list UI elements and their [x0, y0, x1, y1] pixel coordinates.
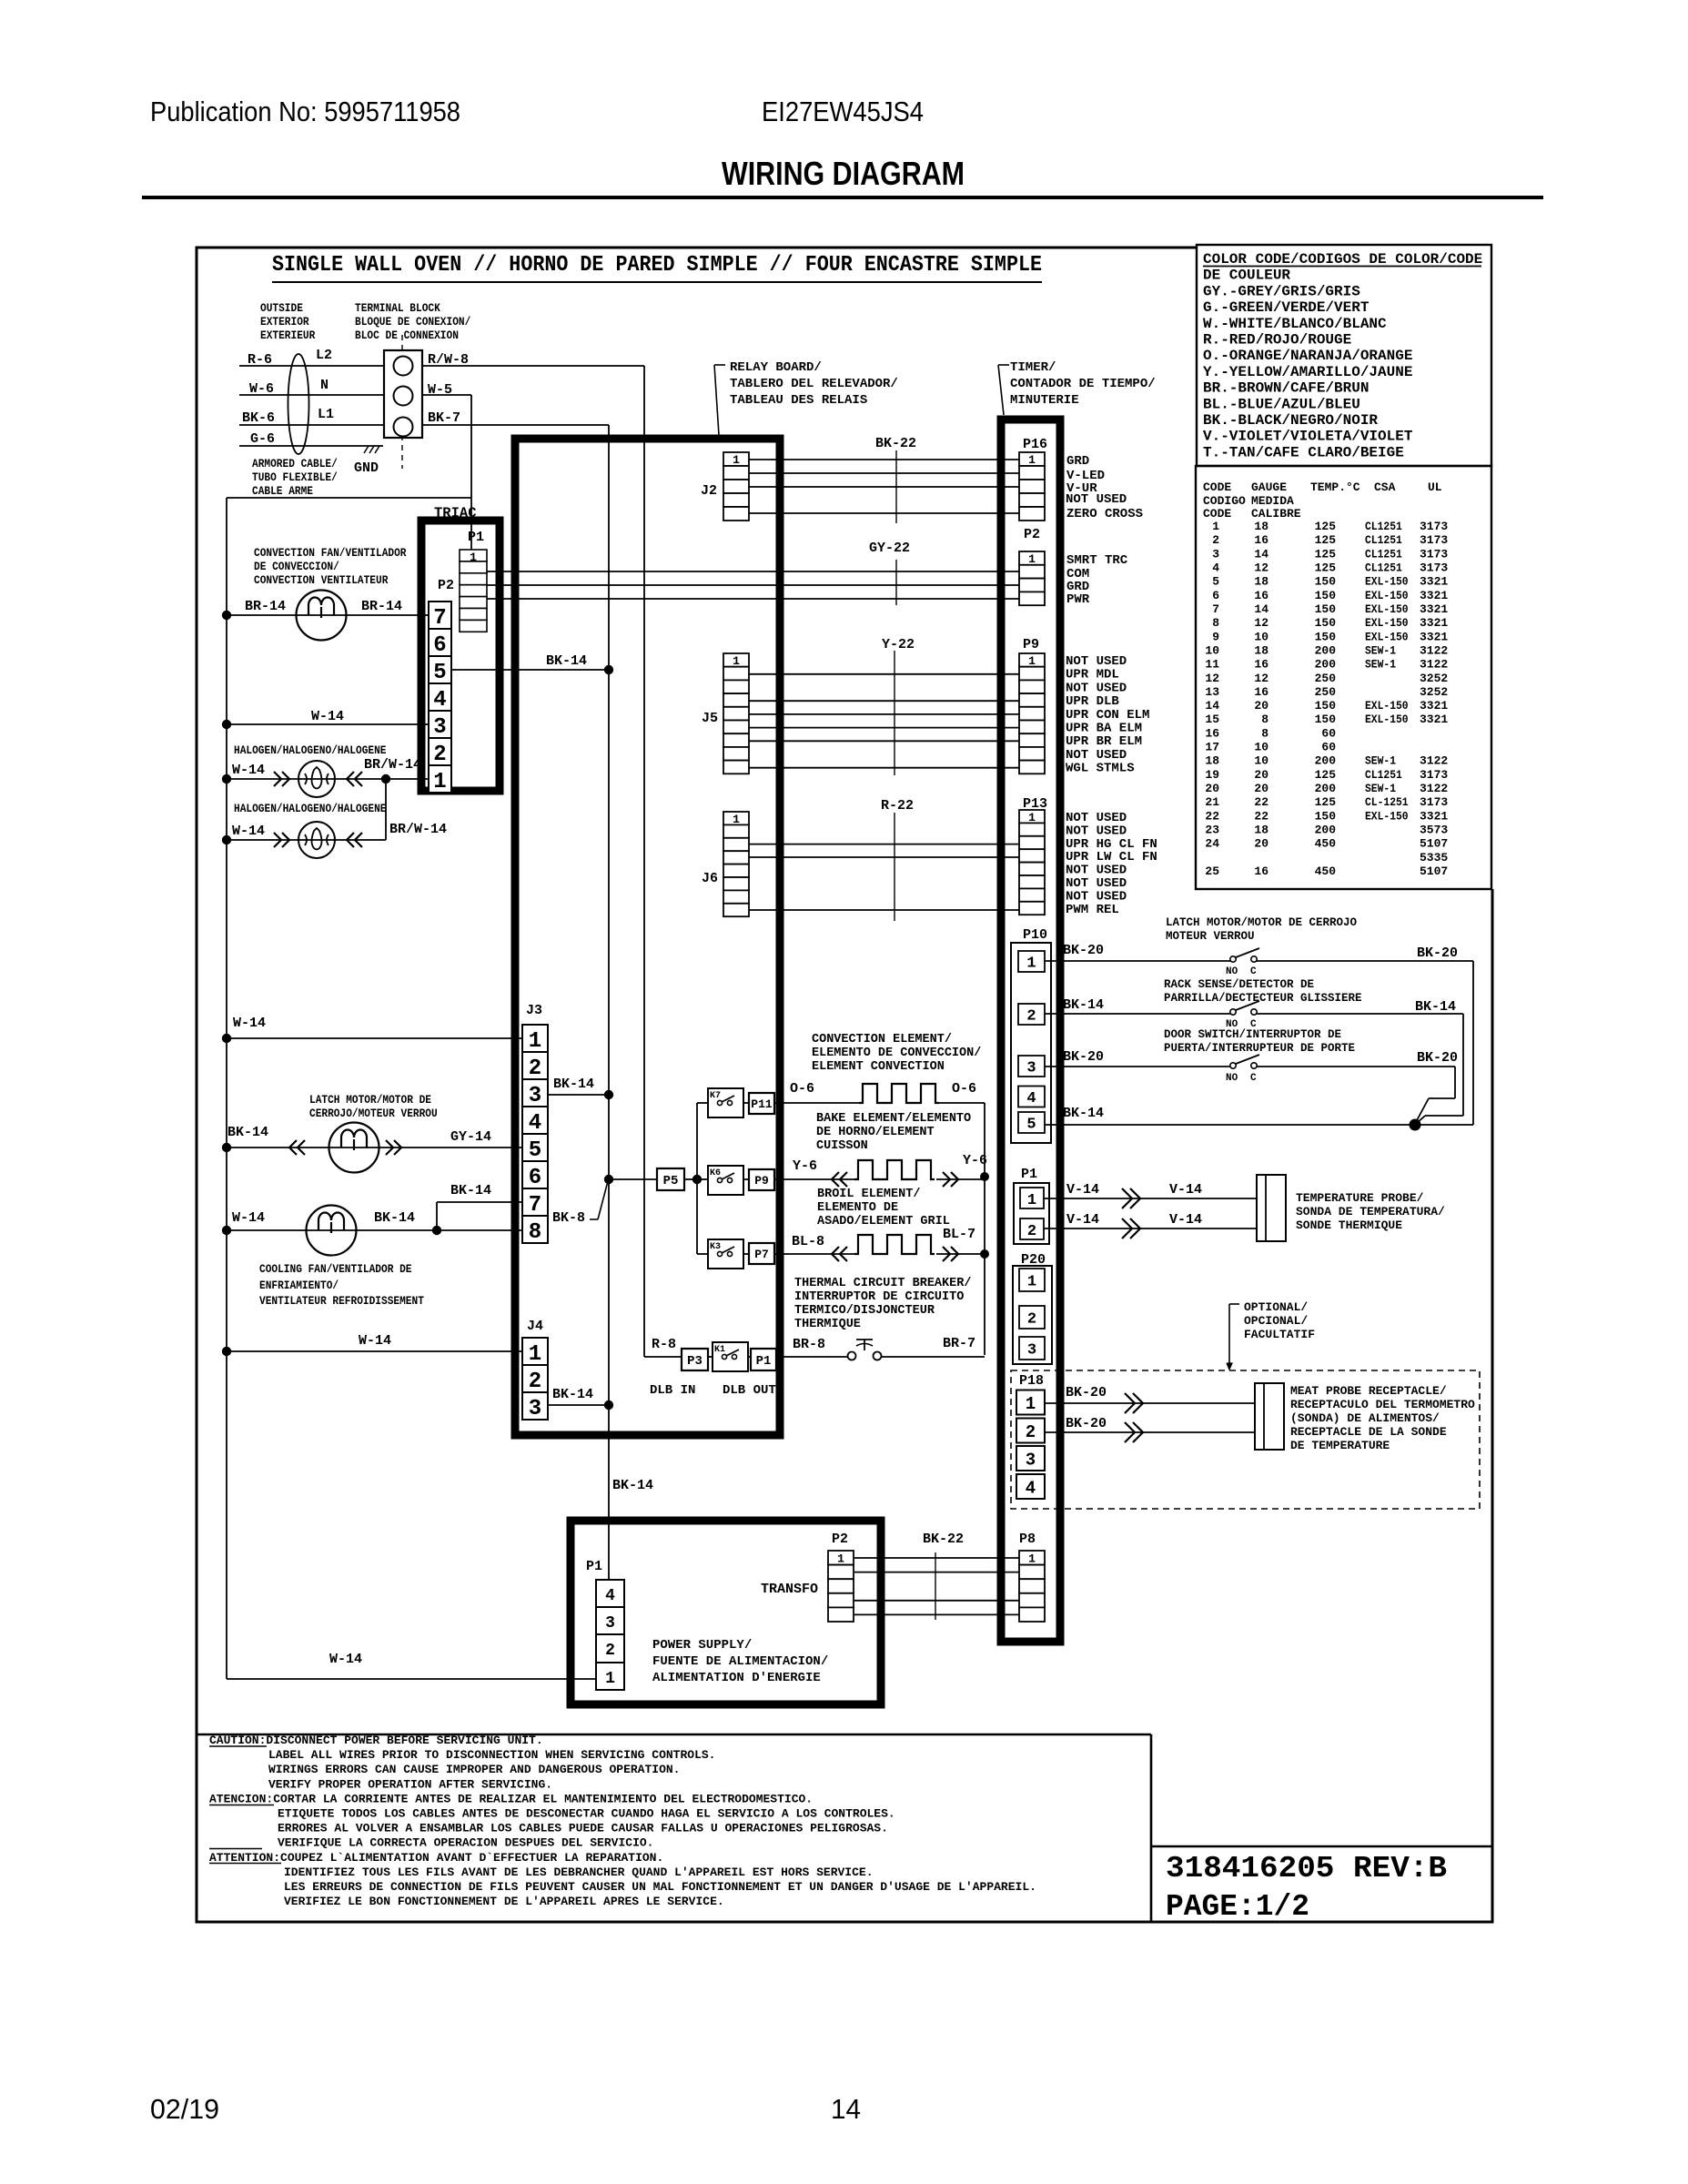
svg-text:EXL-150: EXL-150 — [1365, 575, 1409, 589]
svg-text:SEW-1: SEW-1 — [1365, 658, 1396, 672]
svg-text:11: 11 — [1205, 658, 1219, 672]
svg-text:125: 125 — [1315, 520, 1337, 533]
svg-text:20: 20 — [1254, 782, 1269, 795]
svg-text:CERROJO/MOTEUR VERROU: CERROJO/MOTEUR VERROU — [309, 1107, 438, 1120]
svg-text:CONVECTION ELEMENT/: CONVECTION ELEMENT/ — [812, 1033, 952, 1046]
svg-text:COOLING FAN/VENTILADOR DE: COOLING FAN/VENTILADOR DE — [259, 1263, 412, 1276]
svg-text:GY.-GREY/GRIS/GRIS: GY.-GREY/GRIS/GRIS — [1203, 283, 1360, 299]
svg-text:16: 16 — [1254, 589, 1269, 602]
svg-text:EXL-150: EXL-150 — [1365, 699, 1409, 713]
svg-text:V-14: V-14 — [1169, 1182, 1202, 1198]
svg-text:BK-14: BK-14 — [552, 1387, 593, 1402]
svg-text:EXL-150: EXL-150 — [1365, 630, 1409, 643]
svg-text:3173: 3173 — [1420, 561, 1448, 574]
svg-text:BAKE ELEMENT/ELEMENTO: BAKE ELEMENT/ELEMENTO — [816, 1112, 971, 1126]
svg-text:Publication No: 5995711958: Publication No: 5995711958 — [150, 96, 460, 127]
svg-text:OUTSIDE: OUTSIDE — [260, 302, 303, 315]
svg-text:10: 10 — [1205, 643, 1219, 657]
svg-text:7: 7 — [433, 606, 446, 631]
svg-text:V.-VIOLET/VIOLETA/VIOLET: V.-VIOLET/VIOLETA/VIOLET — [1203, 429, 1413, 445]
svg-text:BR-14: BR-14 — [245, 599, 286, 614]
svg-text:W-14: W-14 — [359, 1333, 391, 1349]
svg-text:10: 10 — [1254, 630, 1269, 643]
svg-text:GRD: GRD — [1066, 454, 1089, 469]
svg-text:60: 60 — [1321, 741, 1336, 754]
svg-text:3252: 3252 — [1420, 685, 1448, 699]
svg-text:BK-22: BK-22 — [923, 1532, 964, 1547]
svg-text:1: 1 — [837, 1552, 844, 1565]
svg-text:5: 5 — [529, 1138, 541, 1163]
svg-text:DE TEMPERATURE: DE TEMPERATURE — [1290, 1439, 1390, 1452]
svg-text:Y-6: Y-6 — [793, 1158, 817, 1174]
svg-text:1: 1 — [605, 1670, 615, 1688]
svg-text:C: C — [1250, 1073, 1257, 1084]
svg-text:125: 125 — [1315, 533, 1337, 547]
svg-text:MINUTERIE: MINUTERIE — [1010, 393, 1079, 408]
svg-text:14: 14 — [831, 2093, 861, 2125]
svg-text:13: 13 — [1205, 685, 1219, 699]
svg-text:ATENCION:CORTAR LA CORRIENTE A: ATENCION:CORTAR LA CORRIENTE ANTES DE RE… — [209, 1792, 813, 1805]
svg-text:2: 2 — [1027, 1223, 1036, 1240]
svg-text:BK-7: BK-7 — [428, 410, 460, 426]
svg-text:1: 1 — [1028, 552, 1036, 566]
svg-text:P18: P18 — [1019, 1373, 1044, 1389]
svg-text:5: 5 — [1212, 575, 1219, 589]
svg-text:450: 450 — [1315, 864, 1337, 878]
svg-text:UL: UL — [1428, 480, 1442, 494]
svg-text:WIRING DIAGRAM: WIRING DIAGRAM — [722, 155, 965, 192]
svg-text:3321: 3321 — [1420, 809, 1448, 823]
svg-text:N: N — [320, 378, 329, 393]
svg-text:K6: K6 — [710, 1168, 721, 1178]
svg-text:P9: P9 — [754, 1174, 769, 1188]
svg-text:P2: P2 — [832, 1532, 848, 1547]
svg-text:P2: P2 — [438, 578, 454, 593]
svg-text:3: 3 — [1212, 547, 1219, 561]
svg-text:FACULTATIF: FACULTATIF — [1244, 1328, 1315, 1341]
svg-text:K3: K3 — [710, 1242, 721, 1252]
svg-text:R.-RED/ROJO/ROUGE: R.-RED/ROJO/ROUGE — [1203, 332, 1351, 349]
svg-text:4: 4 — [433, 688, 446, 713]
svg-text:P8: P8 — [1019, 1532, 1036, 1547]
svg-text:BK-20: BK-20 — [1063, 1049, 1104, 1065]
svg-text:3: 3 — [1026, 1060, 1036, 1077]
svg-text:Y-22: Y-22 — [882, 637, 915, 652]
svg-text:THERMIQUE: THERMIQUE — [794, 1318, 861, 1331]
svg-text:4: 4 — [1212, 561, 1219, 574]
svg-text:VENTILATEUR REFROIDISSEMENT: VENTILATEUR REFROIDISSEMENT — [259, 1295, 424, 1308]
svg-text:FUENTE DE ALIMENTACION/: FUENTE DE ALIMENTACION/ — [652, 1654, 828, 1669]
svg-text:TERMINAL BLOCK: TERMINAL BLOCK — [355, 302, 440, 315]
svg-text:12: 12 — [1254, 561, 1269, 574]
svg-text:BR-14: BR-14 — [361, 599, 402, 614]
svg-text:3122: 3122 — [1420, 643, 1448, 657]
svg-text:WIRINGS ERRORS CAN CAUSE IMPRO: WIRINGS ERRORS CAN CAUSE IMPROPER AND DA… — [268, 1763, 680, 1776]
svg-text:7: 7 — [1212, 602, 1219, 616]
svg-text:MOTEUR VERROU: MOTEUR VERROU — [1166, 930, 1255, 943]
svg-text:8: 8 — [1261, 726, 1269, 740]
svg-text:NOT USED: NOT USED — [1066, 492, 1127, 507]
svg-text:BK-22: BK-22 — [875, 436, 916, 451]
svg-text:R-8: R-8 — [652, 1337, 676, 1352]
svg-text:BK-20: BK-20 — [1066, 1416, 1107, 1431]
svg-text:150: 150 — [1315, 713, 1337, 726]
svg-text:P1: P1 — [468, 530, 484, 545]
svg-text:Y.-YELLOW/AMARILLO/JAUNE: Y.-YELLOW/AMARILLO/JAUNE — [1203, 364, 1412, 380]
svg-text:3: 3 — [605, 1614, 615, 1633]
svg-text:1: 1 — [1027, 1192, 1036, 1209]
svg-text:EXL-150: EXL-150 — [1365, 713, 1409, 726]
svg-text:3173: 3173 — [1420, 795, 1448, 809]
svg-text:INTERRUPTOR DE CIRCUITO: INTERRUPTOR DE CIRCUITO — [794, 1290, 964, 1304]
svg-text:18: 18 — [1254, 520, 1269, 533]
svg-text:20: 20 — [1254, 699, 1269, 713]
svg-text:COLOR CODE/CODIGOS DE COLOR/CO: COLOR CODE/CODIGOS DE COLOR/CODE — [1203, 251, 1482, 268]
svg-text:UPR BR ELM: UPR BR ELM — [1066, 734, 1142, 749]
svg-text:1: 1 — [529, 1029, 541, 1054]
svg-text:1: 1 — [733, 654, 740, 668]
svg-text:PARRILLA/DECTECTEUR GLISSIERE: PARRILLA/DECTECTEUR GLISSIERE — [1164, 992, 1362, 1005]
svg-text:BR/W-14: BR/W-14 — [364, 757, 421, 773]
svg-text:PUERTA/INTERRUPTEUR DE PORTE: PUERTA/INTERRUPTEUR DE PORTE — [1164, 1042, 1355, 1055]
svg-text:2: 2 — [529, 1370, 541, 1394]
svg-text:W-14: W-14 — [232, 824, 265, 839]
svg-text:1: 1 — [1028, 654, 1036, 668]
svg-text:L1: L1 — [318, 407, 334, 422]
svg-text:16: 16 — [1254, 658, 1269, 672]
svg-text:BK-20: BK-20 — [1066, 1385, 1107, 1400]
svg-text:TABLEAU DES RELAIS: TABLEAU DES RELAIS — [730, 393, 867, 408]
svg-text:22: 22 — [1254, 809, 1269, 823]
svg-text:T.-TAN/CAFE CLARO/BEIGE: T.-TAN/CAFE CLARO/BEIGE — [1203, 444, 1404, 460]
svg-text:UPR CON ELM: UPR CON ELM — [1066, 708, 1149, 723]
svg-text:1: 1 — [1028, 811, 1036, 824]
svg-text:BK-20: BK-20 — [1417, 1050, 1458, 1066]
svg-text:HALOGEN/HALOGENO/HALOGENE: HALOGEN/HALOGENO/HALOGENE — [234, 744, 387, 757]
svg-text:3321: 3321 — [1420, 575, 1448, 589]
svg-text:8: 8 — [529, 1220, 541, 1245]
svg-text:BK-14: BK-14 — [546, 653, 587, 669]
svg-text:14: 14 — [1205, 699, 1219, 713]
svg-text:BK-14: BK-14 — [1063, 997, 1104, 1013]
svg-text:3252: 3252 — [1420, 672, 1448, 685]
svg-text:3321: 3321 — [1420, 713, 1448, 726]
svg-text:12: 12 — [1205, 672, 1219, 685]
svg-text:3122: 3122 — [1420, 754, 1448, 768]
svg-text:16: 16 — [1254, 864, 1269, 878]
svg-text:CONVECTION FAN/VENTILADOR: CONVECTION FAN/VENTILADOR — [254, 547, 407, 560]
svg-text:1: 1 — [1028, 453, 1036, 467]
svg-text:125: 125 — [1315, 561, 1337, 574]
svg-text:TEMP.°C: TEMP.°C — [1310, 480, 1360, 494]
svg-text:BK-14: BK-14 — [374, 1210, 415, 1226]
svg-text:2: 2 — [433, 743, 446, 767]
svg-text:3321: 3321 — [1420, 589, 1448, 602]
svg-text:150: 150 — [1315, 575, 1337, 589]
svg-text:4: 4 — [605, 1587, 615, 1605]
svg-text:3: 3 — [529, 1084, 541, 1108]
svg-text:4: 4 — [1026, 1090, 1036, 1107]
svg-text:LES ERREURS DE CONNECTION DE F: LES ERREURS DE CONNECTION DE FILS PEUVEN… — [284, 1880, 1036, 1894]
svg-text:200: 200 — [1315, 782, 1337, 795]
svg-text:O-6: O-6 — [952, 1081, 976, 1097]
svg-text:2: 2 — [1026, 1422, 1036, 1442]
svg-text:17: 17 — [1205, 741, 1219, 754]
svg-text:6: 6 — [1212, 589, 1219, 602]
svg-text:G.-GREEN/VERDE/VERT: G.-GREEN/VERDE/VERT — [1203, 299, 1370, 316]
svg-text:CL1251: CL1251 — [1365, 547, 1402, 561]
svg-text:TIMER/: TIMER/ — [1010, 360, 1056, 375]
svg-text:R-22: R-22 — [881, 798, 914, 814]
svg-text:19: 19 — [1205, 768, 1219, 782]
svg-text:EXL-150: EXL-150 — [1365, 589, 1409, 602]
svg-text:RELAY BOARD/: RELAY BOARD/ — [730, 360, 822, 375]
svg-text:P1: P1 — [586, 1559, 602, 1574]
svg-text:CL1251: CL1251 — [1365, 768, 1402, 782]
svg-text:3321: 3321 — [1420, 602, 1448, 616]
svg-text:1: 1 — [433, 770, 446, 794]
svg-text:LATCH MOTOR/MOTOR DE: LATCH MOTOR/MOTOR DE — [309, 1094, 431, 1107]
svg-text:8: 8 — [1261, 713, 1269, 726]
svg-text:J6: J6 — [702, 871, 718, 886]
svg-text:BK-20: BK-20 — [1417, 945, 1458, 961]
svg-text:3321: 3321 — [1420, 616, 1448, 630]
svg-text:TEMPERATURE PROBE/: TEMPERATURE PROBE/ — [1296, 1191, 1424, 1205]
svg-text:22: 22 — [1254, 795, 1269, 809]
svg-text:BK-14: BK-14 — [1063, 1106, 1104, 1121]
svg-text:SEW-1: SEW-1 — [1365, 643, 1396, 657]
svg-text:GY-14: GY-14 — [450, 1129, 491, 1145]
svg-text:EI27EW45JS4: EI27EW45JS4 — [762, 96, 924, 127]
svg-text:W-14: W-14 — [329, 1652, 362, 1667]
svg-text:23: 23 — [1205, 824, 1219, 837]
svg-text:TABLERO DEL RELEVADOR/: TABLERO DEL RELEVADOR/ — [730, 377, 898, 391]
svg-text:1: 1 — [1028, 1552, 1036, 1565]
svg-text:UPR DLB: UPR DLB — [1066, 694, 1119, 709]
svg-text:200: 200 — [1315, 658, 1337, 672]
svg-text:DLB IN: DLB IN — [650, 1383, 695, 1398]
svg-text:4: 4 — [529, 1111, 541, 1136]
svg-text:21: 21 — [1205, 795, 1219, 809]
svg-text:3122: 3122 — [1420, 782, 1448, 795]
svg-text:16: 16 — [1254, 685, 1269, 699]
svg-text:1: 1 — [1027, 1274, 1036, 1291]
svg-text:P9: P9 — [1023, 637, 1039, 652]
svg-text:6: 6 — [529, 1166, 541, 1190]
svg-text:3173: 3173 — [1420, 768, 1448, 782]
svg-text:P16: P16 — [1023, 437, 1047, 452]
svg-text:16: 16 — [1205, 726, 1219, 740]
svg-text:CUISSON: CUISSON — [816, 1139, 868, 1153]
svg-text:CODE: CODE — [1203, 507, 1231, 521]
svg-text:GAUGE: GAUGE — [1251, 480, 1287, 494]
svg-text:ENFRIAMIENTO/: ENFRIAMIENTO/ — [259, 1279, 339, 1292]
svg-text:12: 12 — [1254, 616, 1269, 630]
svg-text:UPR MDL: UPR MDL — [1066, 668, 1119, 682]
svg-text:GY-22: GY-22 — [869, 541, 910, 556]
svg-text:G-6: G-6 — [250, 431, 275, 447]
svg-text:LATCH MOTOR/MOTOR DE CERROJO: LATCH MOTOR/MOTOR DE CERROJO — [1166, 916, 1358, 929]
svg-text:16: 16 — [1254, 533, 1269, 547]
svg-text:W.-WHITE/BLANCO/BLANC: W.-WHITE/BLANCO/BLANC — [1203, 316, 1387, 332]
svg-text:SINGLE WALL OVEN // HORNO DE P: SINGLE WALL OVEN // HORNO DE PARED SIMPL… — [272, 253, 1042, 278]
svg-text:ETIQUETE TODOS LOS CABLES ANTE: ETIQUETE TODOS LOS CABLES ANTES DE DESCO… — [278, 1807, 895, 1821]
svg-text:BR-7: BR-7 — [943, 1336, 975, 1351]
svg-text:J4: J4 — [527, 1319, 543, 1334]
svg-text:ALIMENTATION D'ENERGIE: ALIMENTATION D'ENERGIE — [652, 1671, 821, 1685]
svg-text:7: 7 — [529, 1193, 541, 1218]
svg-text:SEW-1: SEW-1 — [1365, 754, 1396, 768]
svg-text:L2: L2 — [316, 348, 332, 363]
svg-text:1: 1 — [470, 551, 477, 564]
svg-text:DE CONVECCION/: DE CONVECCION/ — [254, 561, 339, 573]
svg-text:10: 10 — [1254, 741, 1269, 754]
svg-text:EXL-150: EXL-150 — [1365, 602, 1409, 616]
svg-text:RACK SENSE/DETECTOR DE: RACK SENSE/DETECTOR DE — [1164, 978, 1314, 991]
svg-text:BK-14: BK-14 — [553, 1077, 594, 1092]
svg-text:NOT USED: NOT USED — [1066, 681, 1127, 695]
svg-text:3173: 3173 — [1420, 533, 1448, 547]
svg-text:SONDA DE TEMPERATURA/: SONDA DE TEMPERATURA/ — [1296, 1205, 1445, 1218]
svg-text:P1: P1 — [1021, 1167, 1037, 1182]
svg-text:BK-14: BK-14 — [450, 1183, 491, 1198]
svg-text:24: 24 — [1205, 837, 1219, 851]
svg-text:NOT USED: NOT USED — [1066, 748, 1127, 763]
svg-text:BROIL ELEMENT/: BROIL ELEMENT/ — [817, 1188, 920, 1201]
svg-text:P10: P10 — [1023, 927, 1047, 943]
svg-text:BK.-BLACK/NEGRO/NOIR: BK.-BLACK/NEGRO/NOIR — [1203, 412, 1378, 429]
svg-text:9: 9 — [1212, 630, 1219, 643]
svg-text:BK-8: BK-8 — [552, 1210, 585, 1226]
svg-text:3: 3 — [1026, 1451, 1036, 1471]
svg-text:NO: NO — [1226, 966, 1238, 977]
svg-text:THERMAL CIRCUIT BREAKER/: THERMAL CIRCUIT BREAKER/ — [794, 1277, 971, 1290]
svg-text:BR.-BROWN/CAFE/BRUN: BR.-BROWN/CAFE/BRUN — [1203, 380, 1369, 397]
svg-text:P1: P1 — [756, 1354, 772, 1369]
svg-text:5107: 5107 — [1420, 837, 1448, 851]
svg-text:P5: P5 — [663, 1174, 679, 1188]
svg-text:IDENTIFIEZ TOUS LES FILS AVANT: IDENTIFIEZ TOUS LES FILS AVANT DE LES DE… — [284, 1865, 874, 1879]
svg-text:02/19: 02/19 — [150, 2093, 219, 2125]
svg-text:ZERO CROSS: ZERO CROSS — [1066, 507, 1143, 521]
svg-text:J5: J5 — [702, 711, 718, 726]
svg-text:3: 3 — [529, 1397, 541, 1421]
svg-text:3122: 3122 — [1420, 658, 1448, 672]
svg-text:5: 5 — [433, 661, 446, 685]
svg-text:SONDE THERMIQUE: SONDE THERMIQUE — [1296, 1218, 1402, 1232]
svg-text:CODIGO: CODIGO — [1203, 494, 1246, 508]
svg-text:1: 1 — [529, 1342, 541, 1367]
svg-text:DLB OUT: DLB OUT — [723, 1383, 776, 1398]
svg-text:1: 1 — [733, 813, 740, 826]
svg-text:PWM REL: PWM REL — [1066, 903, 1119, 917]
svg-text:CONTADOR DE TIEMPO/: CONTADOR DE TIEMPO/ — [1010, 377, 1156, 391]
svg-text:MEAT PROBE RECEPTACLE/: MEAT PROBE RECEPTACLE/ — [1290, 1384, 1447, 1398]
svg-text:250: 250 — [1315, 672, 1337, 685]
svg-text:TRANSFO: TRANSFO — [761, 1582, 818, 1597]
svg-text:20: 20 — [1205, 782, 1219, 795]
svg-text:TERMICO/DISJONCTEUR: TERMICO/DISJONCTEUR — [794, 1304, 935, 1318]
svg-text:2: 2 — [1027, 1311, 1036, 1329]
svg-text:2: 2 — [1026, 1008, 1036, 1026]
svg-text:150: 150 — [1315, 809, 1337, 823]
svg-text:18: 18 — [1254, 643, 1269, 657]
svg-text:4: 4 — [1026, 1479, 1036, 1499]
svg-text:BK-14: BK-14 — [227, 1125, 268, 1140]
svg-text:GND: GND — [354, 460, 379, 476]
svg-text:ELEMENT CONVECTION: ELEMENT CONVECTION — [812, 1060, 945, 1074]
svg-text:2: 2 — [605, 1642, 615, 1660]
svg-text:15: 15 — [1205, 713, 1219, 726]
svg-text:EXTERIOR: EXTERIOR — [260, 316, 309, 329]
svg-text:6: 6 — [433, 633, 446, 658]
svg-text:BR/W-14: BR/W-14 — [389, 822, 447, 837]
svg-text:318416205 REV:B: 318416205 REV:B — [1166, 1852, 1447, 1886]
svg-text:VERIFIQUE LA CORRECTA OPERACIO: VERIFIQUE LA CORRECTA OPERACION DESPUES … — [278, 1836, 653, 1850]
svg-text:20: 20 — [1254, 837, 1269, 851]
svg-text:200: 200 — [1315, 643, 1337, 657]
svg-text:BK-20: BK-20 — [1063, 943, 1104, 958]
svg-text:150: 150 — [1315, 602, 1337, 616]
svg-text:EXL-150: EXL-150 — [1365, 616, 1409, 630]
svg-text:14: 14 — [1254, 602, 1269, 616]
svg-text:OPTIONAL/: OPTIONAL/ — [1244, 1300, 1308, 1314]
svg-text:BL.-BLUE/AZUL/BLEU: BL.-BLUE/AZUL/BLEU — [1203, 396, 1360, 412]
svg-text:PWR: PWR — [1066, 592, 1090, 607]
svg-text:25: 25 — [1205, 864, 1219, 878]
svg-text:3173: 3173 — [1420, 547, 1448, 561]
svg-text:ERRORES AL VOLVER A ENSAMBLAR: ERRORES AL VOLVER A ENSAMBLAR LOS CABLES… — [278, 1822, 888, 1835]
svg-text:5: 5 — [1026, 1117, 1036, 1134]
svg-text:ELEMENTO DE: ELEMENTO DE — [817, 1201, 898, 1215]
svg-text:V-14: V-14 — [1066, 1212, 1099, 1228]
svg-text:2: 2 — [529, 1057, 541, 1081]
svg-text:450: 450 — [1315, 837, 1337, 851]
svg-text:DE HORNO/ELEMENT: DE HORNO/ELEMENT — [816, 1126, 935, 1139]
svg-text:125: 125 — [1315, 547, 1337, 561]
svg-text:125: 125 — [1315, 795, 1337, 809]
svg-text:MEDIDA: MEDIDA — [1251, 494, 1294, 508]
svg-text:EXTERIEUR: EXTERIEUR — [260, 329, 316, 342]
svg-text:BLOC DE CONNEXION: BLOC DE CONNEXION — [355, 329, 459, 342]
svg-text:W-14: W-14 — [233, 1016, 266, 1031]
svg-text:W-14: W-14 — [311, 709, 344, 724]
svg-text:14: 14 — [1254, 547, 1269, 561]
svg-text:POWER SUPPLY/: POWER SUPPLY/ — [652, 1638, 752, 1653]
svg-text:BK-14: BK-14 — [612, 1478, 653, 1493]
svg-text:BLOQUE DE CONEXION/: BLOQUE DE CONEXION/ — [355, 316, 470, 329]
svg-text:60: 60 — [1321, 726, 1336, 740]
svg-text:DE COULEUR: DE COULEUR — [1203, 268, 1290, 284]
svg-text:NOT USED: NOT USED — [1066, 654, 1127, 669]
svg-text:3573: 3573 — [1420, 824, 1448, 837]
svg-text:BK-14: BK-14 — [1415, 999, 1456, 1015]
svg-text:3321: 3321 — [1420, 630, 1448, 643]
svg-text:12: 12 — [1254, 672, 1269, 685]
svg-text:150: 150 — [1315, 616, 1337, 630]
svg-text:BL-7: BL-7 — [943, 1227, 975, 1242]
svg-text:1: 1 — [733, 453, 740, 467]
svg-text:UPR BA ELM: UPR BA ELM — [1066, 722, 1142, 736]
svg-text:CL1251: CL1251 — [1365, 533, 1402, 547]
svg-text:J3: J3 — [526, 1003, 542, 1018]
svg-text:8: 8 — [1212, 616, 1219, 630]
svg-text:W-14: W-14 — [232, 1210, 265, 1226]
svg-text:P11: P11 — [751, 1097, 773, 1111]
svg-text:RECEPTACLE DE LA SONDE: RECEPTACLE DE LA SONDE — [1290, 1425, 1447, 1439]
svg-text:1: 1 — [1026, 1394, 1036, 1414]
svg-text:EXL-150: EXL-150 — [1365, 809, 1409, 823]
